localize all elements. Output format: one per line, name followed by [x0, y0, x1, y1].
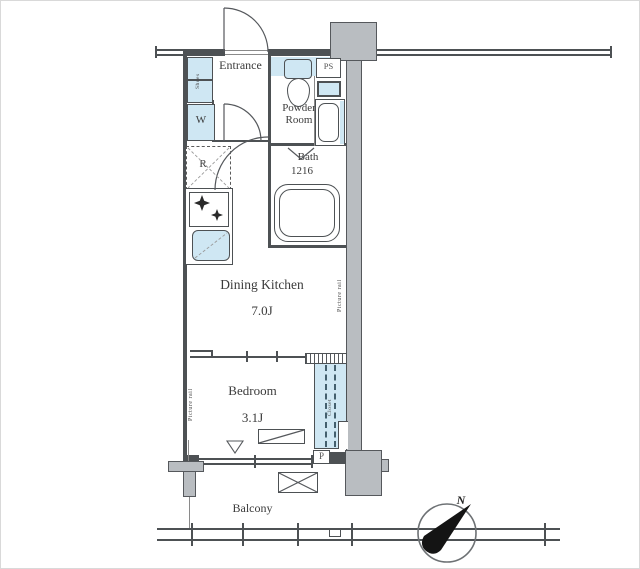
closet-wall-notch [338, 421, 348, 449]
ac-unit-space [278, 472, 318, 493]
kitchen-sink [192, 230, 230, 261]
balcony-divider-stem [183, 471, 196, 497]
balcony-railing [157, 539, 560, 541]
balcony-divider-line [189, 497, 190, 528]
corridor-wall-endcap [610, 46, 612, 58]
balcony-access-marker [227, 441, 243, 453]
hall-door-arc [224, 104, 261, 141]
structural-column-bottom [345, 450, 382, 496]
vanity-edge [340, 101, 344, 144]
toilet-tank [284, 59, 312, 79]
entrance-label: Entrance [213, 59, 268, 72]
closet-label: Closet [327, 392, 333, 422]
north-arrow-icon [408, 492, 490, 569]
wall-bath-bottom [268, 245, 346, 248]
railing-tick [191, 523, 193, 546]
wall-right [346, 60, 362, 452]
closet-hanger-pipe [334, 365, 336, 447]
wall-powder-left [268, 52, 271, 248]
pipe-space-label: PS [316, 62, 341, 71]
wall-bottom-right [330, 452, 346, 464]
water-heater [317, 81, 341, 97]
window-tick [254, 455, 256, 468]
desk-counter [258, 429, 305, 444]
stove [189, 192, 229, 227]
partition-stub [190, 350, 212, 352]
railing-tick [242, 523, 244, 546]
dining-kitchen-label: Dining Kitchen [192, 278, 332, 293]
picture-rail-left-label: Picture rail [188, 376, 194, 434]
partition-tick [246, 351, 248, 362]
railing-tick [297, 523, 299, 546]
bedroom-size-label: 3.1J [190, 411, 315, 425]
bathtub-inner [279, 189, 335, 237]
railing-tick [544, 523, 546, 546]
partition-sliding-door [190, 356, 306, 358]
balcony-divider-line [188, 440, 189, 461]
pipe-shaft-column [330, 22, 377, 61]
structural-column-notch [381, 459, 389, 472]
powder-room-line2: Room [286, 114, 313, 126]
corridor-wall-endcap [155, 46, 157, 58]
railing-tick [351, 523, 353, 546]
balcony-railing [157, 528, 560, 530]
floorplan-canvas: Shoes W Entrance R Powder Room PS Bath 1… [0, 0, 640, 569]
powder-room-line1: Powder [282, 102, 316, 114]
wash-basin [318, 103, 339, 142]
shoe-cabinet-label: Shoes [195, 60, 201, 102]
wall-hall-bottom [212, 140, 270, 142]
partition-tick [276, 351, 278, 362]
entrance-door-arc [224, 8, 268, 52]
bath-size-label: 1216 [272, 165, 332, 177]
pipe-box-label: P [313, 452, 330, 462]
bath-label: Bath [278, 151, 338, 163]
refrigerator-label: R [188, 158, 218, 170]
washer-label: W [187, 114, 215, 126]
entrance-threshold [225, 50, 268, 51]
balcony-label: Balcony [200, 502, 305, 515]
railing-drain-box [329, 529, 341, 537]
picture-rail-right-label: Picture rail [337, 266, 343, 326]
north-label: N [452, 494, 470, 507]
dining-kitchen-size-label: 7.0J [192, 304, 332, 318]
bedroom-label: Bedroom [190, 384, 315, 398]
entrance-threshold [225, 54, 268, 55]
